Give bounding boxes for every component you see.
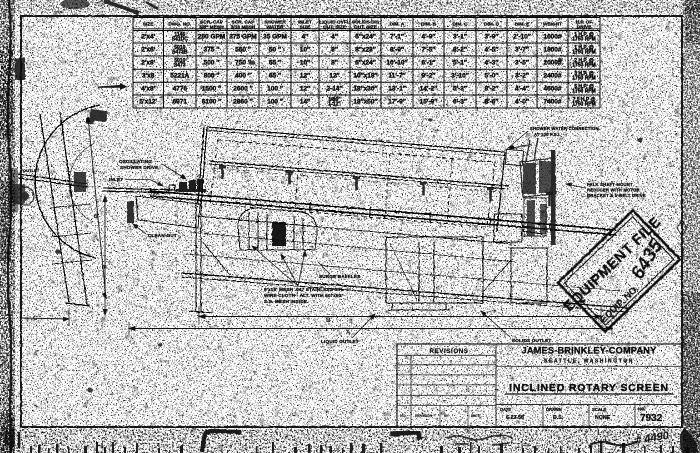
svg-text:7′-5″: 7′-5″ [421, 46, 435, 53]
svg-text:DRIVE: DRIVE [577, 24, 592, 30]
svg-text:6″x24″: 6″x24″ [355, 34, 376, 41]
svg-text:5′-0″: 5′-0″ [484, 73, 498, 80]
svg-text:6-23-58: 6-23-58 [506, 415, 524, 421]
svg-text:4″: 4″ [302, 34, 309, 41]
svg-text:1600#: 1600# [543, 34, 561, 41]
svg-text:3′-9″: 3′-9″ [484, 34, 498, 41]
svg-text:3′-1″: 3′-1″ [453, 34, 467, 41]
svg-text:BY: BY [444, 414, 450, 418]
svg-text:NONE: NONE [595, 415, 611, 421]
svg-text:1750 RPM: 1750 RPM [572, 37, 596, 43]
svg-text:6071: 6071 [173, 98, 188, 105]
svg-text:SIZE: SIZE [143, 22, 154, 28]
svg-text:4′-9″: 4′-9″ [421, 34, 435, 41]
svg-text:DIM. E: DIM. E [515, 22, 530, 28]
svg-text:17′-9″: 17′-9″ [388, 98, 406, 105]
svg-text:13′-1″: 13′-1″ [388, 86, 406, 93]
svg-text:S41DC: S41DC [172, 37, 189, 43]
svg-text:18″x50″: 18″x50″ [353, 98, 377, 105]
svg-text:375 GPM: 375 GPM [229, 34, 256, 41]
svg-text:2′x6′: 2′x6′ [141, 46, 155, 53]
svg-text:DIM. B: DIM. B [421, 22, 436, 28]
svg-text:560 ″: 560 ″ [235, 46, 251, 53]
svg-text:D.S.: D.S. [553, 415, 564, 421]
svg-text:2400#: 2400# [543, 73, 561, 80]
svg-text:DATE: DATE [500, 407, 511, 412]
svg-text:65 ″: 65 ″ [269, 73, 281, 80]
svg-text:S.S. MESH INSIDE.: S.S. MESH INSIDE. [264, 299, 309, 304]
svg-text:SOLIDS OUTLET: SOLIDS OUTLET [512, 338, 551, 343]
svg-text:REVISION: REVISION [415, 414, 433, 418]
svg-text:CLEAN-OUT: CLEAN-OUT [148, 233, 177, 238]
svg-text:800 ″: 800 ″ [204, 73, 220, 80]
svg-text:REDUCER WITH MOTOR: REDUCER WITH MOTOR [587, 188, 640, 193]
svg-text:8'x16' MESH .047 STAINLESS STL: 8'x16' MESH .047 STAINLESS STL [264, 287, 344, 292]
svg-text:4776: 4776 [173, 86, 188, 93]
svg-text:10″: 10″ [300, 46, 310, 53]
svg-text:WATER: WATER [267, 24, 285, 30]
svg-text:4″: 4″ [331, 34, 338, 41]
svg-text:B: B [326, 317, 331, 324]
svg-text:A: A [346, 330, 351, 336]
svg-text:BRACKET & V-BELT DRIVE: BRACKET & V-BELT DRIVE [587, 193, 646, 198]
svg-text:5/8″ MESH: 5/8″ MESH [199, 24, 224, 30]
svg-text:4′-3″: 4′-3″ [484, 60, 498, 67]
svg-text:2860 ″: 2860 ″ [233, 98, 252, 105]
svg-text:2′x4′: 2′x4′ [141, 34, 155, 41]
svg-text:3′-2″: 3′-2″ [515, 73, 529, 80]
svg-text:SURGE BAFFLES: SURGE BAFFLES [319, 274, 360, 279]
svg-text:6″x24″: 6″x24″ [355, 60, 376, 67]
svg-text:8′-6″: 8′-6″ [484, 98, 498, 105]
svg-text:11′-7″: 11′-7″ [388, 73, 405, 80]
svg-text:SHOWER DRIVE: SHOWER DRIVE [120, 165, 158, 170]
svg-text:8″x28″: 8″x28″ [355, 46, 376, 53]
svg-text:8′-2″: 8′-2″ [484, 86, 498, 93]
svg-text:5′x12′: 5′x12′ [139, 98, 157, 105]
svg-text:375 ″: 375 ″ [204, 46, 220, 53]
svg-text:14″: 14″ [300, 98, 310, 105]
svg-text:4′-4″: 4′-4″ [515, 86, 529, 93]
svg-text:NO.: NO. [400, 414, 406, 418]
svg-text:1-12″: 1-12″ [328, 101, 341, 107]
svg-text:1750 RPM: 1750 RPM [572, 89, 596, 95]
svg-text:DATE: DATE [471, 414, 481, 418]
svg-text:12″: 12″ [300, 86, 310, 93]
svg-text:8″: 8″ [331, 46, 338, 53]
svg-text:1750 RPM: 1750 RPM [572, 49, 596, 55]
svg-text:14′-2″: 14′-2″ [420, 86, 438, 93]
svg-text:6′-3″: 6′-3″ [453, 98, 467, 105]
svg-text:18″x30″: 18″x30″ [353, 86, 377, 93]
svg-text:OUT. SIZE: OUT. SIZE [323, 24, 347, 30]
svg-text:1500 ″: 1500 ″ [202, 86, 221, 93]
svg-text:OUTLET: OUTLET [23, 169, 40, 173]
svg-text:SHOWER WATER CONNECTION: SHOWER WATER CONNECTION [530, 126, 599, 131]
svg-text:6′-1″: 6′-1″ [421, 60, 435, 67]
svg-text:8″: 8″ [331, 60, 338, 67]
svg-text:2600 ″: 2600 ″ [233, 86, 252, 93]
svg-text:750 ″: 750 ″ [235, 60, 251, 67]
svg-text:WEIGHT: WEIGHT [543, 22, 562, 28]
svg-text:3/16 MESH: 3/16 MESH [231, 24, 256, 30]
svg-text:NO.: NO. [638, 407, 645, 412]
svg-text:S473: S473 [174, 62, 186, 68]
svg-text:C: C [33, 316, 38, 322]
svg-text:S473B: S473B [172, 49, 188, 55]
svg-text:4′-0″: 4′-0″ [515, 98, 529, 105]
svg-text:INCLINED ROTARY SCREEN: INCLINED ROTARY SCREEN [509, 382, 669, 394]
svg-text:10″: 10″ [300, 60, 310, 67]
svg-text:9′-2″: 9′-2″ [421, 73, 435, 80]
svg-text:SEATTLE, WASHINGTON: SEATTLE, WASHINGTON [544, 359, 634, 365]
svg-text:FALK SHAFT MOUNT: FALK SHAFT MOUNT [587, 182, 633, 187]
svg-text:15′-9″: 15′-9″ [420, 98, 438, 105]
svg-text:OUT. SIZE: OUT. SIZE [354, 24, 378, 30]
svg-text:1750 RPM: 1750 RPM [572, 101, 596, 107]
svg-text:100 ″: 100 ″ [267, 86, 283, 93]
svg-text:500 ″: 500 ″ [204, 60, 220, 67]
svg-text:5′-1″: 5′-1″ [453, 60, 467, 67]
svg-text:DRAWN: DRAWN [546, 407, 562, 412]
svg-text:4600#: 4600# [543, 86, 561, 93]
svg-text:JAMES-BRINKLEY-COMPANY: JAMES-BRINKLEY-COMPANY [522, 346, 657, 356]
svg-text:1750 RPM: 1750 RPM [572, 76, 596, 82]
svg-text:AT 100 P.S.I.: AT 100 P.S.I. [534, 132, 561, 137]
svg-text:7932: 7932 [640, 413, 663, 424]
svg-text:7400#: 7400# [543, 98, 561, 105]
svg-text:8′-9″: 8′-9″ [390, 46, 404, 53]
svg-text:DIM. A: DIM. A [390, 22, 405, 28]
svg-text:4′-5″: 4′-5″ [484, 46, 498, 53]
svg-text:10″x18″: 10″x18″ [353, 73, 377, 80]
svg-text:400 ″: 400 ″ [235, 73, 251, 80]
svg-text:INLET: INLET [109, 177, 123, 182]
svg-text:35 GPM: 35 GPM [263, 34, 287, 41]
svg-text:2′x8′: 2′x8′ [141, 60, 155, 67]
svg-text:1750 RPM: 1750 RPM [572, 62, 596, 68]
svg-text:100 ″: 100 ″ [267, 98, 283, 105]
svg-text:5221A: 5221A [170, 73, 189, 80]
svg-text:3′x8: 3′x8 [142, 73, 155, 80]
svg-text:3′-10″: 3′-10″ [451, 73, 469, 80]
svg-text:OSCILLATING: OSCILLATING [119, 159, 152, 164]
svg-text:7′-1″: 7′-1″ [390, 34, 404, 41]
svg-text:12″: 12″ [300, 73, 310, 80]
svg-text:E: E [100, 265, 106, 269]
svg-text:2′-10″: 2′-10″ [513, 34, 531, 41]
svg-text:DIM. C: DIM. C [453, 22, 468, 28]
svg-text:1800#: 1800# [543, 46, 561, 53]
svg-text:SIZE: SIZE [300, 24, 311, 30]
svg-text:12″: 12″ [329, 73, 339, 80]
svg-text:4′x8′: 4′x8′ [141, 86, 155, 93]
svg-text:REVISIONS: REVISIONS [429, 348, 468, 355]
svg-text:SCALE: SCALE [592, 407, 606, 412]
svg-text:65 ″: 65 ″ [269, 60, 281, 67]
svg-text:3′-5″: 3′-5″ [515, 60, 529, 67]
svg-text:50 ″: 50 ″ [269, 46, 281, 53]
svg-text:DIM. D: DIM. D [484, 22, 499, 28]
svg-text:8′-2″: 8′-2″ [453, 46, 467, 53]
svg-text:250 GPM: 250 GPM [198, 34, 225, 41]
svg-text:LIQUID OUTLET: LIQUID OUTLET [321, 339, 359, 344]
svg-text:DWG. NO.: DWG. NO. [168, 22, 191, 28]
svg-text:5′-3″: 5′-3″ [453, 86, 467, 93]
svg-text:10′-10″: 10′-10″ [386, 60, 407, 67]
svg-text:2-14″: 2-14″ [326, 86, 342, 93]
svg-text:WIRE CLOTH - ALT. WITH 50"x50": WIRE CLOTH - ALT. WITH 50"x50" [264, 293, 344, 298]
svg-text:6100 ″: 6100 ″ [202, 98, 221, 105]
svg-text:3′-7″: 3′-7″ [515, 46, 529, 53]
